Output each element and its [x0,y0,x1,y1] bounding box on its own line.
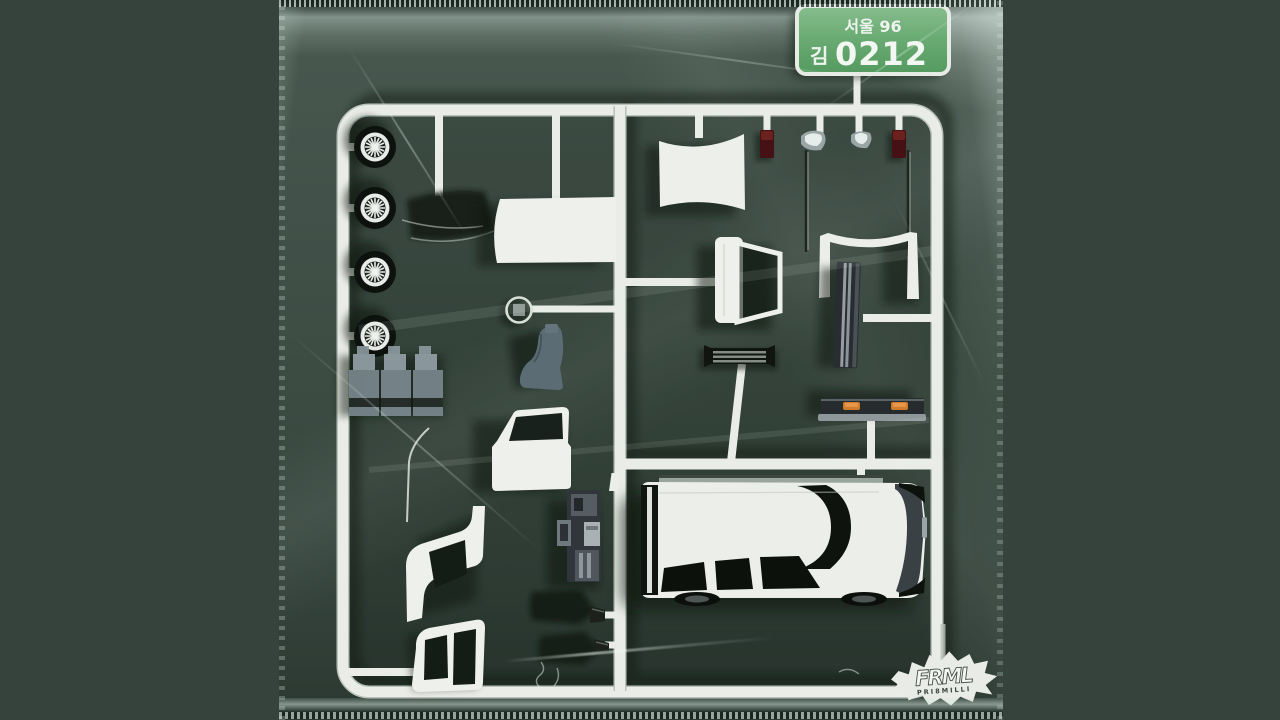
bag-seam-left [279,0,285,720]
engine-block-part [339,346,443,416]
bag-crimp-top [279,0,1003,7]
wheel-part [354,187,396,229]
tail-light-part [887,130,906,161]
shrink-wrapped-model-kit: 서울 96 김 0212 FRML PRI8MILLI [279,0,1003,720]
wheel-part [354,126,396,168]
tail-light-part [755,130,774,161]
bag-crimp-bottom [279,712,1003,719]
car-body-part [609,473,927,610]
wheel-part [354,251,396,293]
door-sill-trim-part [817,261,861,368]
plate-owner-char: 김 [810,44,828,68]
album-art-stage: 서울 96 김 0212 FRML PRI8MILLI [0,0,1280,720]
bag-fold-highlight [279,698,1003,712]
center-console-part [547,490,601,588]
windshield-panel-part [645,134,745,216]
plate-region-text: 서울 96 [844,17,901,36]
bag-seam-right [997,0,1003,720]
roof-panel-part [477,197,616,266]
license-plate: 서울 96 김 0212 [791,6,949,78]
side-mirror-part [801,131,826,151]
plate-number: 0212 [835,35,928,73]
rear-bumper-part [807,390,926,421]
front-grille-part [699,345,777,370]
sprue-illustration: 서울 96 김 0212 FRML PRI8MILLI [279,0,1003,720]
